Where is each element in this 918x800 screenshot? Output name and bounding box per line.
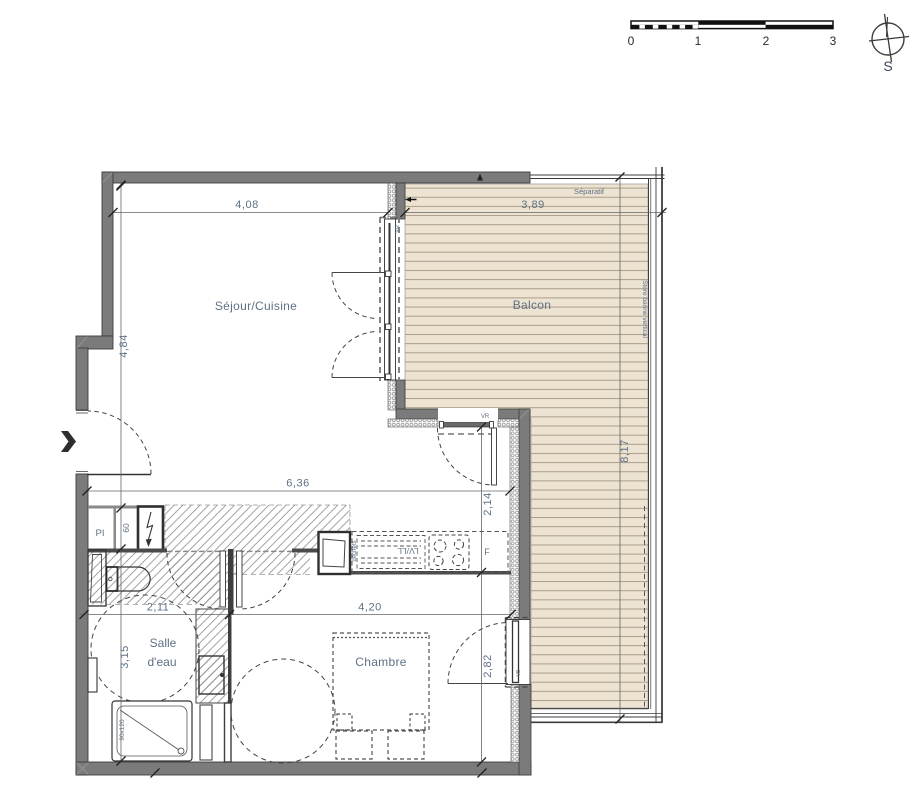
svg-text:4,84: 4,84 <box>118 334 130 357</box>
svg-text:Store banne vertical: Store banne vertical <box>641 280 648 338</box>
svg-text:6,36: 6,36 <box>286 478 309 490</box>
svg-text:Séparatif: Séparatif <box>574 187 605 196</box>
svg-text:90x120: 90x120 <box>119 719 126 741</box>
svg-text:4,20: 4,20 <box>358 602 381 614</box>
svg-text:Balcon: Balcon <box>513 298 552 312</box>
svg-text:4,08: 4,08 <box>235 199 258 211</box>
svg-text:PI: PI <box>96 528 105 539</box>
svg-text:F: F <box>484 547 490 557</box>
svg-text:8,17: 8,17 <box>619 439 631 462</box>
svg-text:1: 1 <box>695 34 702 48</box>
svg-text:3,15: 3,15 <box>119 645 131 668</box>
svg-text:VR: VR <box>395 225 401 233</box>
svg-text:Séjour/Cuisine: Séjour/Cuisine <box>215 299 297 313</box>
svg-text:Salle: Salle <box>150 636 177 650</box>
svg-text:LV/LL: LV/LL <box>397 546 419 556</box>
svg-text:2: 2 <box>763 34 770 48</box>
svg-text:2,14: 2,14 <box>482 492 494 515</box>
svg-text:60: 60 <box>121 523 131 533</box>
svg-text:VB: VB <box>516 669 522 676</box>
svg-text:2,82: 2,82 <box>482 654 494 677</box>
svg-text:Chambre: Chambre <box>355 655 406 669</box>
svg-text:3,89: 3,89 <box>521 199 544 211</box>
svg-text:0: 0 <box>628 34 635 48</box>
svg-text:d'eau: d'eau <box>148 655 177 669</box>
svg-text:VR: VR <box>481 414 490 420</box>
svg-text:3: 3 <box>830 34 837 48</box>
svg-text:2,11: 2,11 <box>147 602 170 614</box>
svg-text:S: S <box>883 58 892 74</box>
